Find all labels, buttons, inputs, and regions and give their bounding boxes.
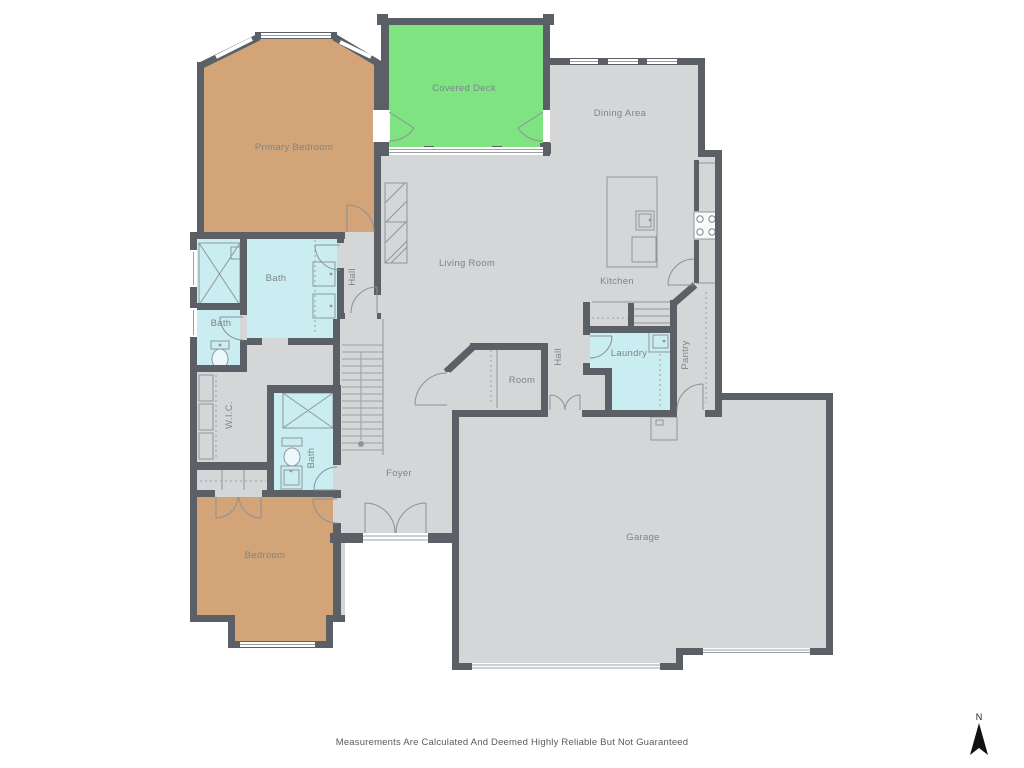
north-arrow-icon: N — [970, 712, 988, 755]
stairs-direction-marker — [358, 441, 364, 447]
label-foyer: Foyer — [386, 468, 412, 479]
disclaimer-text: Measurements Are Calculated And Deemed H… — [336, 737, 689, 748]
label-living-room: Living Room — [439, 258, 495, 269]
floor-plan-page: Primary Bedroom Covered Deck Dining Area… — [0, 0, 1024, 768]
label-hall-center: Hall — [553, 348, 564, 366]
label-hall-west: Hall — [347, 268, 358, 286]
label-bedroom: Bedroom — [245, 550, 286, 561]
label-garage: Garage — [626, 532, 660, 543]
label-primary-bedroom: Primary Bedroom — [255, 142, 333, 153]
label-room: Room — [509, 375, 536, 386]
label-dining-area: Dining Area — [594, 108, 647, 119]
label-covered-deck: Covered Deck — [432, 83, 496, 94]
stove — [694, 212, 718, 239]
room-primary-bedroom — [204, 39, 377, 232]
label-wic: W.I.C. — [224, 401, 235, 429]
label-bath-primary: Bath — [266, 273, 287, 284]
room-shower-closet — [197, 239, 240, 303]
label-laundry: Laundry — [611, 348, 647, 359]
label-pantry: Pantry — [680, 340, 691, 369]
north-arrow-pointer — [970, 723, 988, 755]
toilet-second-bath — [284, 448, 300, 466]
label-bath-second: Bath — [306, 448, 317, 469]
label-kitchen: Kitchen — [600, 276, 634, 287]
floor-plan-canvas: Primary Bedroom Covered Deck Dining Area… — [0, 0, 1024, 768]
room-bath-primary — [247, 239, 337, 338]
label-bath-half: Bath — [211, 318, 232, 329]
north-label: N — [976, 712, 983, 722]
